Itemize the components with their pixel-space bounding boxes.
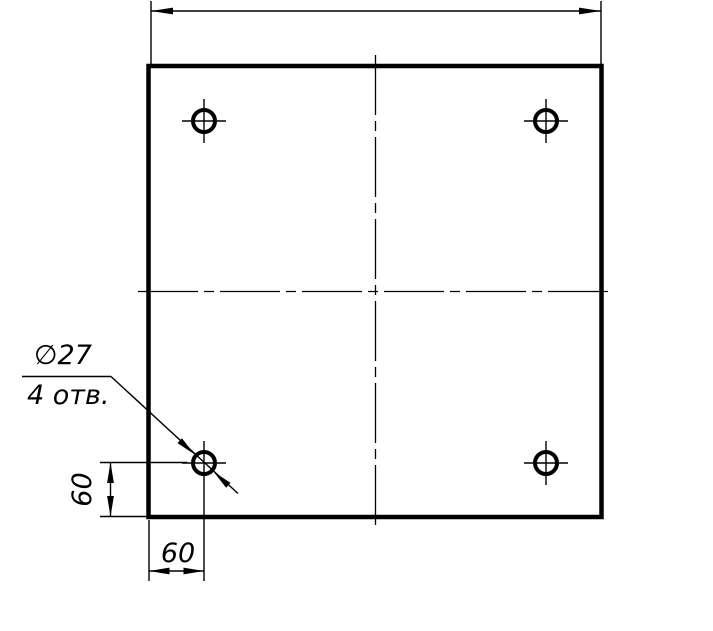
hole-top-right: [524, 99, 568, 143]
hole-diameter-label: ∅27: [34, 340, 92, 371]
vertical-dim-arrow-up: [107, 463, 114, 484]
hole-bottom-right: [524, 441, 568, 485]
drawing-sheet: ∅27 4 отв. 60 60: [0, 0, 713, 631]
hole-leader: ∅27 4 отв.: [22, 340, 238, 494]
hole-top-left: [182, 99, 226, 143]
horizontal-dim-value: 60: [161, 538, 195, 569]
leader-arrow-lower: [214, 472, 231, 488]
hole-count-note: 4 отв.: [27, 380, 110, 411]
leader-arrow-upper: [178, 438, 195, 454]
vertical-dim-value: 60: [67, 472, 98, 506]
vertical-dim-arrow-down: [107, 496, 114, 517]
technical-drawing: ∅27 4 отв. 60 60: [0, 0, 713, 631]
top-dim-arrow-right: [579, 8, 601, 15]
top-dim-arrow-left: [151, 8, 173, 15]
horizontal-offset-dimension: 60: [149, 520, 204, 581]
vertical-offset-dimension: 60: [67, 463, 187, 517]
